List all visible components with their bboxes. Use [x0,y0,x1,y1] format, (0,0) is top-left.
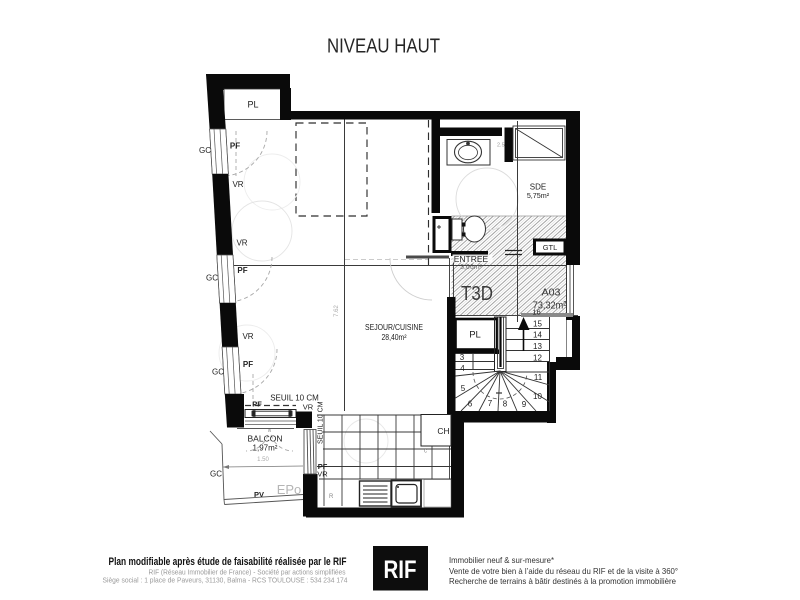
svg-text:PF: PF [230,142,240,151]
svg-text:VR: VR [303,403,314,412]
svg-text:RIF: RIF [384,556,417,584]
svg-text:GC: GC [210,470,222,479]
svg-text:EPo: EPo [277,482,302,497]
svg-text:PF: PF [243,360,253,369]
svg-text:GC: GC [199,146,211,155]
svg-text:A03: A03 [542,287,561,299]
svg-text:SEJOUR/CUISINE: SEJOUR/CUISINE [365,323,423,332]
svg-text:Plan modifiable après étude de: Plan modifiable après étude de faisabili… [109,556,347,568]
svg-text:VR: VR [242,332,253,341]
svg-text:Recherche de terrains à bâtir: Recherche de terrains à bâtir destinés à… [449,576,676,586]
svg-text:15: 15 [533,320,542,329]
svg-text:13: 13 [533,342,542,351]
svg-text:16: 16 [532,308,540,317]
svg-text:14: 14 [533,331,542,340]
svg-text:8: 8 [503,400,508,409]
svg-text:28,40m²: 28,40m² [382,333,407,342]
svg-text:NIVEAU HAUT: NIVEAU HAUT [327,36,440,58]
svg-text:CH: CH [437,426,449,436]
svg-text:PF: PF [237,266,247,275]
svg-text:7.62: 7.62 [334,305,340,317]
svg-text:4: 4 [460,364,465,373]
svg-text:Vente de votre bien à l’aide d: Vente de votre bien à l’aide du réseau d… [449,566,678,576]
svg-text:6: 6 [468,400,473,409]
svg-text:GC: GC [206,274,218,283]
svg-text:9: 9 [522,400,527,409]
svg-text:3: 3 [460,353,465,362]
svg-text:VR: VR [232,180,243,189]
svg-text:PF: PF [252,400,262,409]
svg-text:GTL: GTL [543,243,558,252]
svg-text:SEUIL 10 CM: SEUIL 10 CM [270,394,319,403]
svg-text:Siège social : 1 place de Pave: Siège social : 1 place de Paveurs, 31130… [103,576,348,585]
svg-text:10: 10 [533,392,542,401]
svg-text:GC: GC [212,368,224,377]
svg-text:Immobilier neuf & sur-mesure*: Immobilier neuf & sur-mesure* [449,555,555,565]
svg-text:5,75m²: 5,75m² [527,191,550,200]
svg-text:VR: VR [236,239,247,248]
svg-text:1,97m²: 1,97m² [253,444,278,453]
svg-text:PV: PV [254,490,264,499]
svg-text:VR: VR [317,470,328,479]
svg-text:ENTREE: ENTREE [454,254,489,264]
svg-text:T3D: T3D [461,282,493,305]
svg-text:7: 7 [488,399,493,408]
svg-text:5: 5 [461,384,466,393]
svg-text:1.50: 1.50 [257,457,269,463]
svg-text:3,66m²: 3,66m² [460,264,482,271]
svg-text:12: 12 [533,354,542,363]
svg-text:c: c [424,449,427,455]
svg-text:R: R [329,494,334,500]
svg-text:BALCON: BALCON [248,434,283,444]
svg-text:PL: PL [469,330,481,341]
svg-text:11: 11 [534,373,543,382]
svg-text:2.5: 2.5 [497,143,505,149]
svg-text:SEUIL 10 CM: SEUIL 10 CM [318,401,325,444]
svg-text:PL: PL [247,100,258,110]
